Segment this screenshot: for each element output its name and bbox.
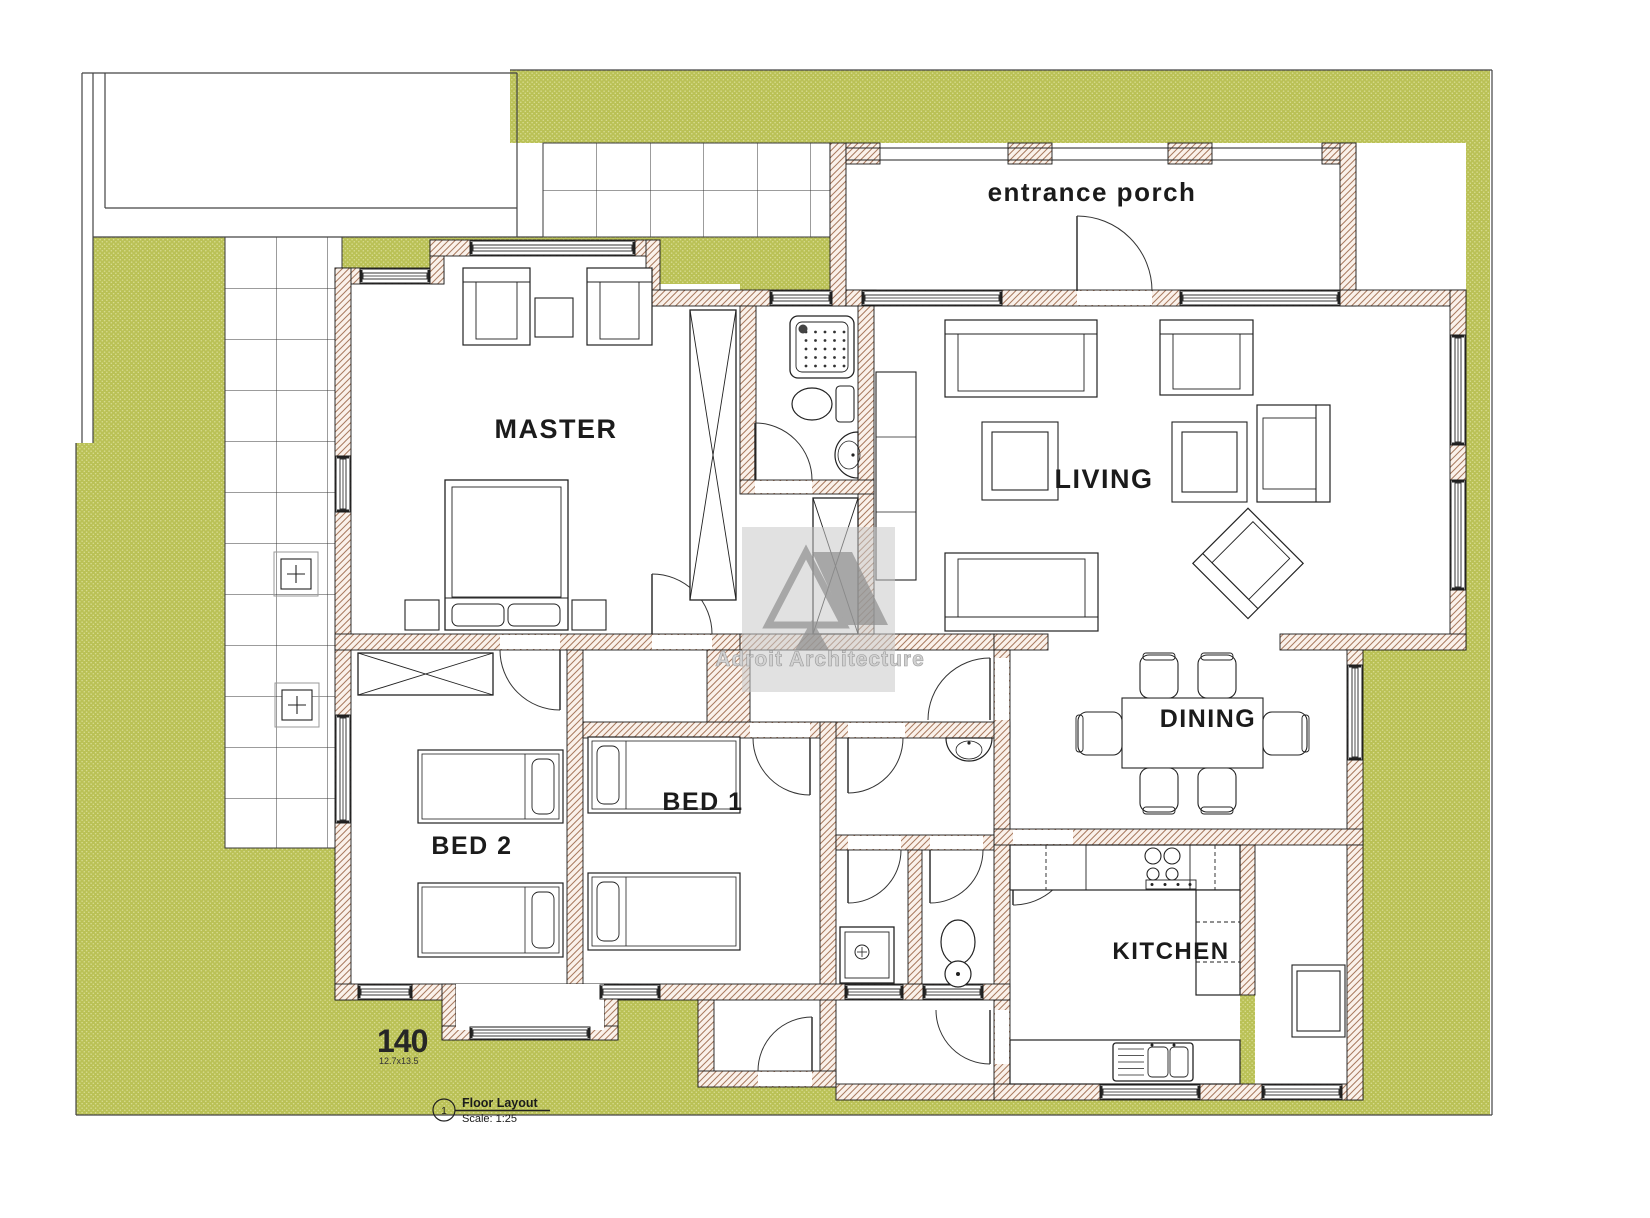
room-label-bed1: BED 1: [662, 788, 743, 816]
sheet-title: Floor Layout: [462, 1096, 539, 1110]
room-label-bed2: BED 2: [431, 832, 512, 860]
floor-plan-drawing: entrance porch MASTER LIVING DINING BED …: [0, 0, 1650, 1218]
room-label-living: LIVING: [1054, 464, 1153, 494]
area-dimensions: 12.7x13.5: [379, 1056, 419, 1066]
floor-plan-page: entrance porch MASTER LIVING DINING BED …: [0, 0, 1650, 1218]
sheet-scale: Scale: 1:25: [462, 1113, 517, 1125]
room-label-kitchen: KITCHEN: [1112, 938, 1229, 965]
watermark-text: Adroit Architecture: [715, 648, 925, 671]
room-label-master: MASTER: [495, 414, 618, 444]
sheet-number: 1: [441, 1106, 447, 1117]
watermark: Adroit Architecture: [715, 527, 925, 692]
area-number: 140: [377, 1023, 428, 1059]
room-label-dining: DINING: [1160, 705, 1257, 733]
room-label-entrance-porch: entrance porch: [988, 177, 1197, 207]
